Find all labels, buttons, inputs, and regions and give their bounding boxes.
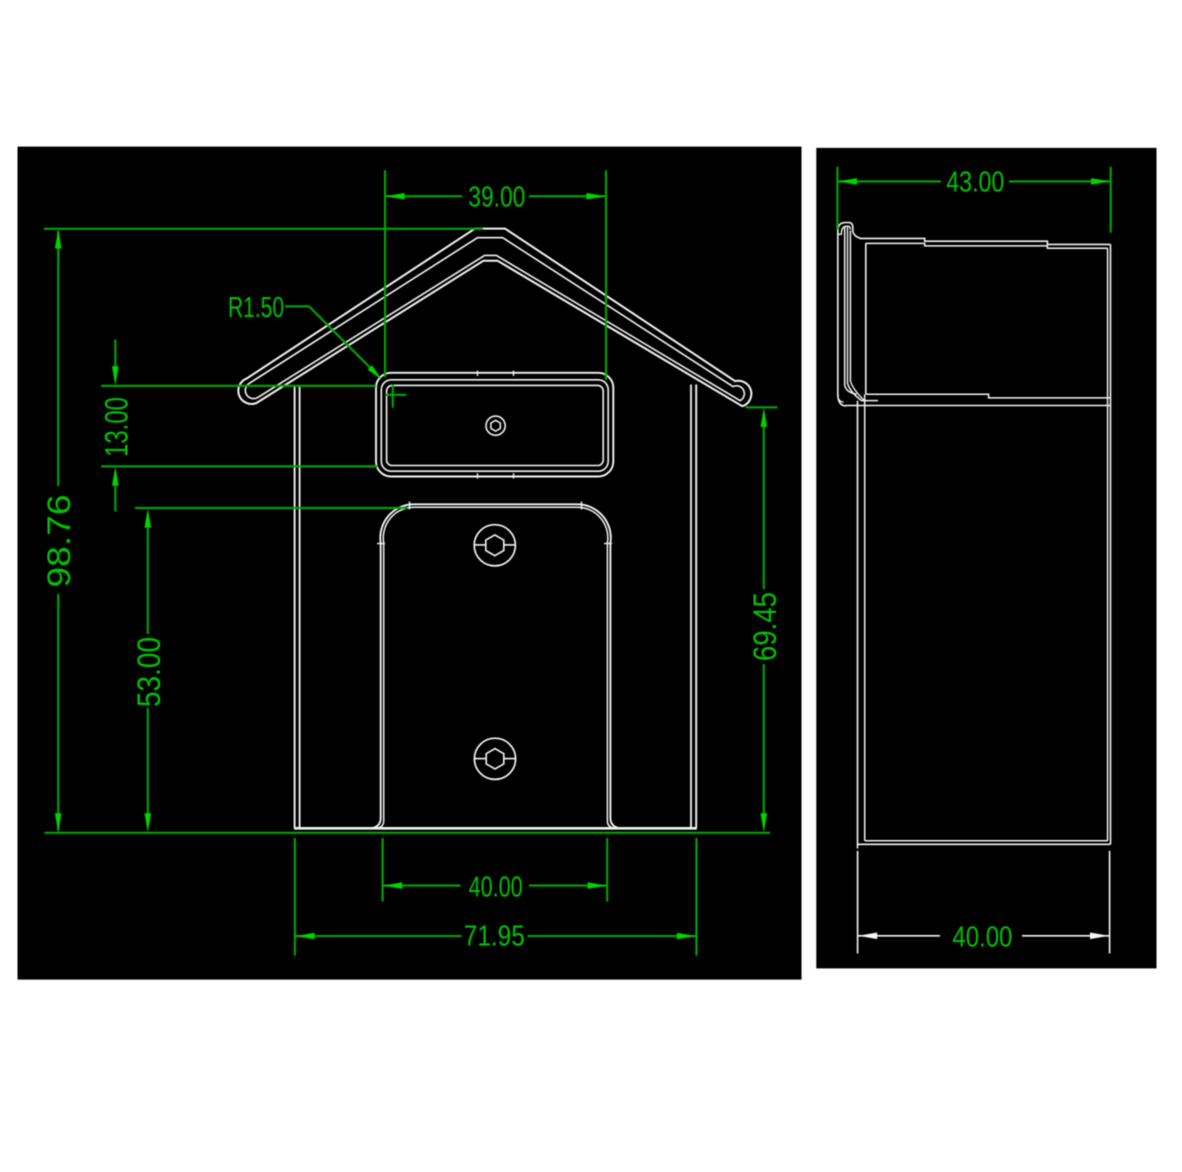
svg-text:40.00: 40.00: [469, 871, 523, 903]
svg-text:R1.50: R1.50: [228, 292, 284, 324]
svg-text:43.00: 43.00: [946, 166, 1004, 198]
svg-text:13.00: 13.00: [98, 397, 134, 457]
svg-text:39.00: 39.00: [468, 181, 525, 213]
svg-text:71.95: 71.95: [464, 921, 525, 953]
svg-text:69.45: 69.45: [747, 592, 783, 661]
svg-text:98.76: 98.76: [41, 495, 77, 588]
svg-text:53.00: 53.00: [131, 637, 167, 707]
svg-text:40.00: 40.00: [952, 922, 1012, 954]
